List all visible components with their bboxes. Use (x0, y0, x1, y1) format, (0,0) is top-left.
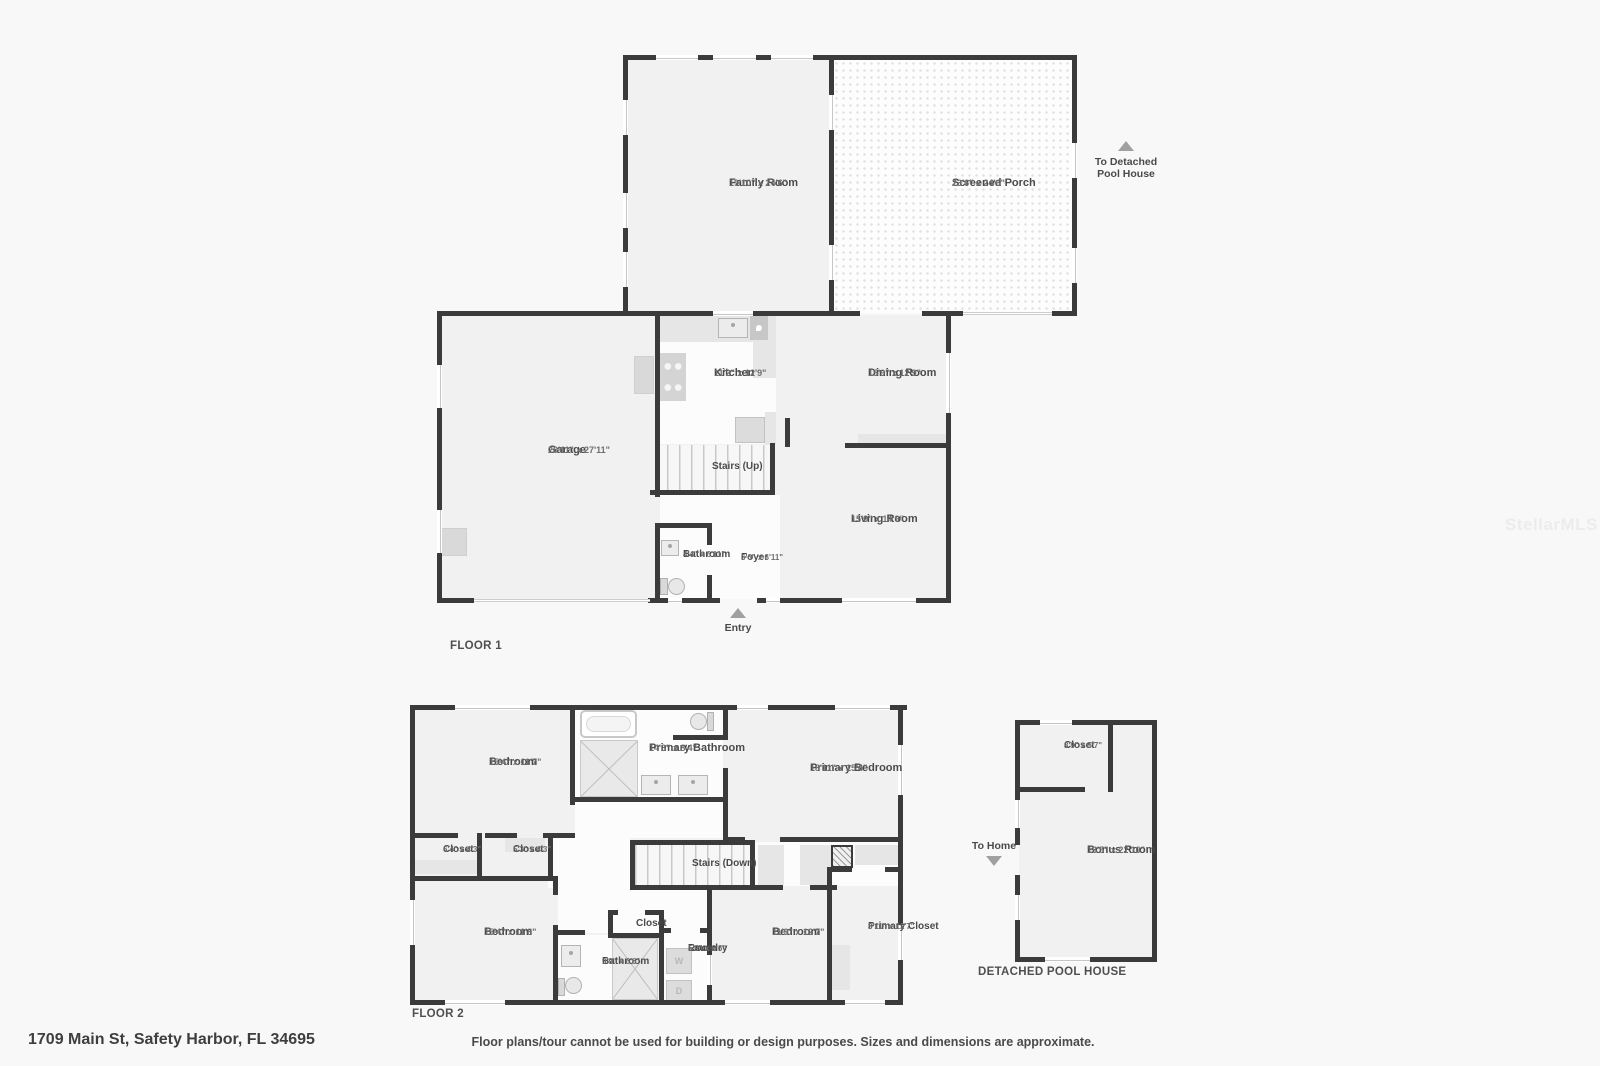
room-dims: 4'4" x 6'11" (683, 549, 725, 560)
wall (832, 867, 852, 872)
window (437, 365, 442, 408)
room-dims: 6'4" x 4'3" (443, 844, 481, 855)
water-heater (441, 528, 467, 556)
window (623, 100, 628, 135)
dryer-label: D (676, 986, 683, 996)
window (829, 245, 834, 280)
window (410, 900, 415, 945)
wall (553, 876, 558, 895)
window (845, 1000, 885, 1005)
porch-screen-line (963, 312, 1052, 315)
wall (845, 443, 951, 448)
window (1045, 957, 1090, 962)
room-dims: 15'9" x 12'9" (868, 367, 921, 379)
wall (1015, 875, 1020, 895)
window (1072, 143, 1077, 178)
floor2-title: FLOOR 2 (412, 1008, 464, 1020)
window (623, 252, 628, 287)
closet-shelf (414, 860, 478, 874)
disclaimer-text: Floor plans/tour cannot be used for buil… (471, 1035, 1094, 1049)
to-pool-house-label-line2: Pool House (1097, 168, 1155, 180)
wall (570, 705, 575, 805)
wall (655, 527, 660, 603)
wall (553, 925, 558, 1005)
refrigerator (634, 356, 654, 394)
dishwasher (735, 417, 765, 443)
wall (437, 311, 442, 603)
wall (700, 928, 712, 933)
wall (437, 598, 474, 603)
to-home-arrow-icon (986, 856, 1002, 866)
to-pool-house-label-line1: To Detached (1095, 156, 1157, 168)
wall (485, 833, 517, 838)
window (771, 55, 813, 60)
room-dims: 20'11" x 27'11" (548, 444, 610, 456)
wall (410, 876, 555, 881)
window (829, 95, 834, 130)
window (668, 598, 682, 603)
stove (660, 353, 686, 401)
wall (1015, 787, 1085, 792)
wall (1015, 920, 1020, 962)
room-dims: 13'5" x 22'10" (1087, 844, 1145, 856)
wall (630, 840, 755, 845)
window (725, 1000, 770, 1005)
to-pool-house-arrow-icon (1118, 141, 1134, 151)
window (1015, 895, 1020, 920)
wall (630, 840, 635, 890)
room-dims: 8'9" x 5'7" (1064, 740, 1102, 751)
wall (780, 837, 902, 842)
to-home-label: To Home (972, 840, 1016, 852)
kitchen-appliance (750, 316, 768, 340)
toilet-tank (660, 578, 668, 595)
room-dims: 19'10" x 24'6" (729, 177, 787, 189)
wall (885, 867, 903, 872)
wall (1015, 720, 1157, 725)
wall (922, 311, 963, 316)
room-name: Stairs (Up) (712, 461, 763, 473)
wall (608, 933, 664, 938)
toilet-tank (558, 978, 565, 996)
window (437, 510, 442, 553)
pool-house-floor (1019, 724, 1153, 959)
wall (477, 833, 482, 881)
wall (770, 443, 775, 495)
bathroom2-sink (561, 945, 581, 967)
wall (673, 735, 723, 740)
wall (885, 1000, 903, 1005)
wall (770, 1000, 845, 1005)
window (445, 1000, 505, 1005)
wall (723, 768, 728, 842)
wall (780, 598, 842, 603)
shower2 (612, 938, 658, 1000)
wall (659, 933, 664, 1005)
floor-plan-geometry (0, 0, 1600, 1066)
wall (712, 885, 783, 890)
room-name: Stairs (Down) (692, 858, 756, 870)
wall (707, 575, 712, 603)
hall-storage (758, 845, 784, 885)
window (842, 598, 916, 603)
room-dims: 18'11" x 15'4" (810, 762, 867, 774)
entry-label: Entry (725, 622, 752, 634)
window (713, 311, 753, 316)
primary-shower (580, 740, 638, 797)
room-dims: 8'11" x 12'7" (868, 921, 915, 932)
washer-label: W (675, 956, 684, 966)
bathroom1-sink (661, 540, 679, 556)
wall (553, 930, 585, 935)
window (737, 705, 768, 710)
window (707, 955, 712, 985)
room-dims: 15'4" x 11'8" (484, 926, 536, 938)
wall (655, 311, 660, 497)
floor1-title: FLOOR 1 (450, 640, 502, 652)
wall (707, 523, 712, 545)
wall (810, 885, 837, 890)
toilet-bowl (690, 713, 707, 730)
vanity-sink (678, 775, 708, 795)
wall (682, 598, 720, 603)
window (623, 193, 628, 228)
window (835, 705, 890, 710)
kitchen-counter (765, 412, 776, 445)
chimney (831, 845, 853, 868)
room-dims: 15'4" x 11'7" (489, 756, 541, 768)
room-dims: 5'9" x 6'6" (688, 943, 726, 954)
wall (1108, 720, 1113, 792)
kitchen-sink (718, 318, 748, 338)
stellar-mls-watermark: StellarMLS (1505, 515, 1598, 535)
window (1040, 720, 1072, 725)
window (713, 55, 756, 60)
linen-shelf (855, 845, 900, 865)
wall (410, 705, 415, 1005)
garage-door-line (474, 599, 650, 602)
primary-closet-shelf (832, 945, 850, 990)
wall (785, 418, 790, 447)
wall (410, 833, 458, 838)
room-name: Closet (636, 918, 667, 930)
hall-floor (575, 802, 723, 838)
room-dims: 11'9" x 12'7" (772, 926, 824, 938)
vanity-sink (641, 775, 671, 795)
toilet-bowl (565, 977, 582, 994)
wall (548, 833, 553, 881)
window (946, 353, 951, 413)
bathtub (580, 710, 637, 738)
room-dims: 23'6" x 24'6" (952, 177, 1005, 189)
wall (723, 705, 728, 740)
room-dims: 6'6" x 6'11" (741, 552, 783, 563)
window (656, 55, 698, 60)
hall-floor (548, 838, 630, 888)
pool-house-title: DETACHED POOL HOUSE (978, 966, 1126, 978)
wall (570, 797, 728, 802)
room-dims: 11'2" x 12'9" (714, 367, 766, 379)
floor-plan-page: Family Room 19'10" x 24'6" Screened Porc… (0, 0, 1600, 1066)
toilet-tank (707, 712, 714, 731)
entry-arrow-icon (730, 608, 746, 618)
wall (827, 867, 832, 1005)
room-dims: 14'3" x 8'4" (649, 742, 697, 754)
window (766, 598, 780, 603)
wall (655, 523, 712, 528)
wall (437, 311, 833, 316)
window (1015, 800, 1020, 828)
wall (1152, 720, 1157, 962)
wall (410, 1000, 445, 1005)
window (455, 705, 530, 710)
wall (650, 490, 775, 495)
toilet-bowl (668, 578, 685, 595)
window (1072, 248, 1077, 283)
property-address: 1709 Main St, Safety Harbor, FL 34695 (28, 1031, 315, 1049)
wall (505, 1000, 725, 1005)
room-dims: 9'9" x 6'6" (602, 956, 640, 967)
wall (757, 598, 766, 603)
room-dims: 15'9" x 14'9" (851, 513, 904, 525)
wall (916, 598, 951, 603)
room-dims: 5'3" x 4'3" (513, 844, 551, 855)
